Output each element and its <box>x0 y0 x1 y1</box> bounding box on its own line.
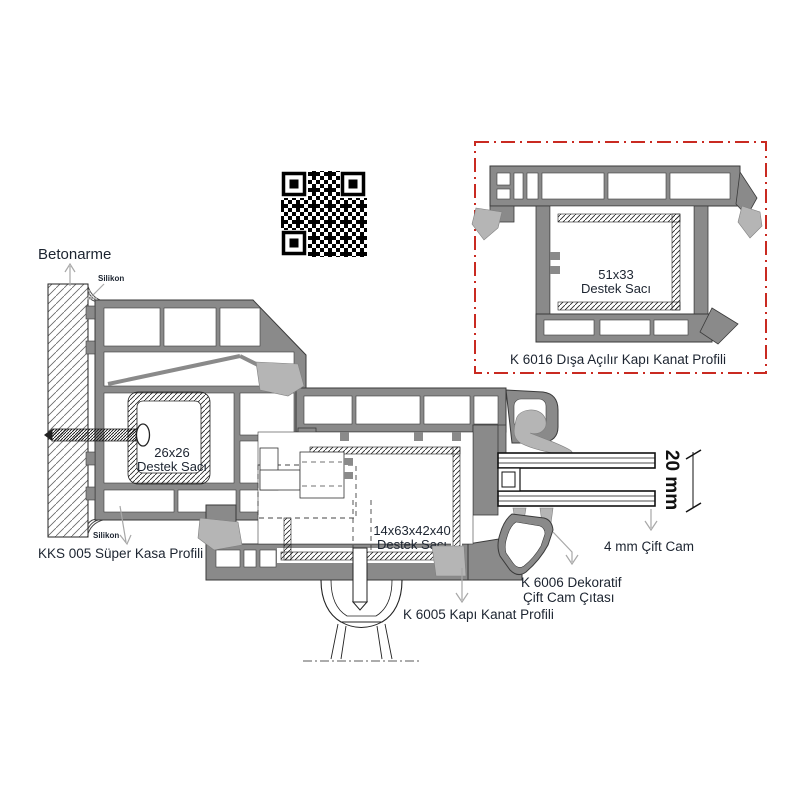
window-door-section-drawing: 26x26 Destek Sacı <box>0 0 800 800</box>
label-bead-line1: K 6006 Dekoratif <box>521 575 622 590</box>
technical-drawing-page: 26x26 Destek Sacı <box>0 0 800 800</box>
label-glass-dimension: 20 mm <box>661 450 682 510</box>
qr-code-icon <box>281 171 367 257</box>
glass-pane-outer <box>498 453 655 468</box>
label-steel-51-line1: 51x33 <box>598 267 633 282</box>
label-frame-profile: KKS 005 Süper Kasa Profili <box>38 546 203 561</box>
label-bead-line2: Çift Cam Çıtası <box>523 590 615 605</box>
label-steel-26-line2: Destek Sacı <box>137 459 207 474</box>
glass-pane-inner <box>498 491 655 506</box>
label-betonarme: Betonarme <box>38 246 111 263</box>
label-silikon-top: Silikon <box>98 274 124 283</box>
label-detail-caption: K 6016 Dışa Açılır Kapı Kanat Profili <box>510 352 726 367</box>
label-steel-14-line1: 14x63x42x40 <box>373 523 450 538</box>
label-glazing: 4 mm Çift Cam <box>604 539 694 554</box>
label-steel-51-line2: Destek Sacı <box>581 281 651 296</box>
detail-box-k6016: 51x33 Destek Sacı K 6016 Dışa Açılır Kap… <box>472 142 766 373</box>
glass-thickness-dimension: 20 mm <box>661 450 701 512</box>
double-glazing: 20 mm <box>498 450 701 575</box>
label-silikon-bottom: Silikon <box>93 531 119 540</box>
label-steel-26-line1: 26x26 <box>154 445 189 460</box>
label-sash-profile: K 6005 Kapı Kanat Profili <box>403 607 554 622</box>
